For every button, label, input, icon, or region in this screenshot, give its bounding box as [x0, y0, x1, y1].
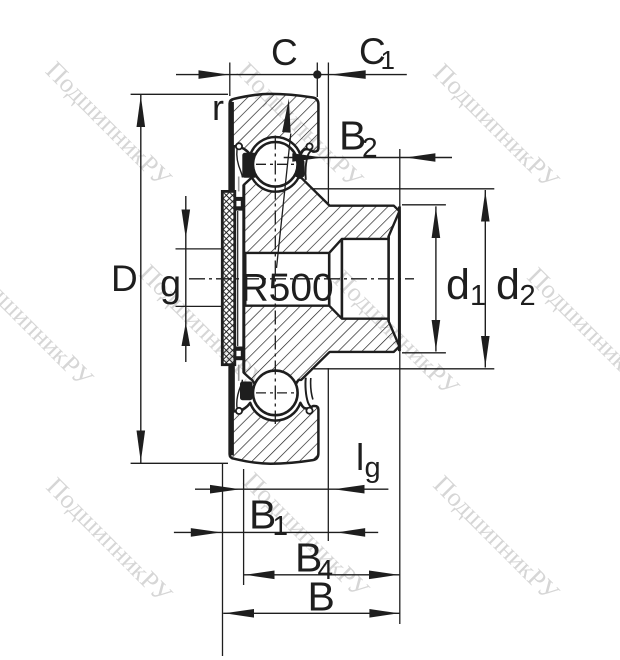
svg-text:2: 2 — [362, 132, 378, 163]
svg-text:l: l — [356, 437, 364, 478]
svg-text:1: 1 — [381, 45, 395, 75]
svg-text:C: C — [271, 32, 298, 73]
svg-text:d: d — [496, 261, 520, 309]
svg-text:r: r — [212, 87, 224, 128]
svg-text:ПодшипникРУ: ПодшипникРУ — [428, 470, 565, 607]
svg-text:ПодшипникРУ: ПодшипникРУ — [522, 262, 620, 399]
svg-text:R500: R500 — [241, 267, 334, 310]
svg-text:B: B — [308, 574, 335, 620]
svg-text:ПодшипникРУ: ПодшипникРУ — [40, 56, 177, 193]
svg-text:2: 2 — [520, 280, 536, 312]
svg-text:ПодшипникРУ: ПодшипникРУ — [428, 58, 565, 195]
svg-text:D: D — [111, 258, 138, 299]
svg-text:g: g — [365, 452, 381, 484]
svg-text:1: 1 — [470, 280, 486, 312]
svg-text:d: d — [446, 261, 470, 309]
svg-text:1: 1 — [273, 510, 289, 541]
svg-text:ПодшипникРУ: ПодшипникРУ — [0, 256, 99, 393]
svg-text:g: g — [160, 264, 181, 306]
svg-text:ПодшипникРУ: ПодшипникРУ — [41, 472, 178, 609]
